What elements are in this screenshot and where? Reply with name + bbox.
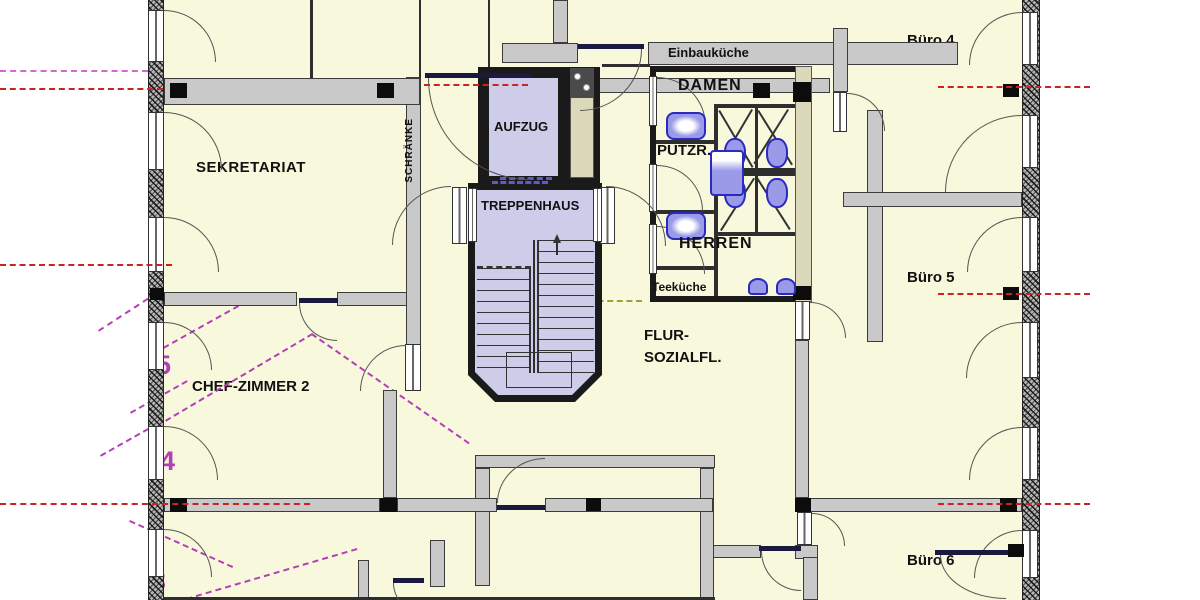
window	[649, 76, 657, 126]
column	[586, 498, 601, 511]
window	[1022, 115, 1038, 168]
partition-line	[714, 104, 795, 108]
door-leaf	[578, 44, 644, 49]
door-leaf	[425, 73, 531, 78]
centerline	[938, 503, 1090, 505]
stair-flight-down	[477, 268, 531, 373]
centerline	[0, 503, 310, 505]
room-label-aufzug: AUFZUG	[494, 119, 548, 134]
column	[150, 288, 164, 300]
wall	[833, 28, 848, 92]
room-label-herren: HERREN	[679, 235, 753, 253]
door-leaf	[935, 550, 1008, 555]
room-label-flur-line1: FLUR-	[644, 327, 689, 344]
wall-solid	[650, 66, 812, 72]
window	[593, 188, 602, 242]
wall	[358, 560, 369, 600]
wall	[164, 292, 297, 306]
centerline	[938, 86, 1090, 88]
stair-cut-line	[477, 266, 531, 268]
window	[1022, 12, 1038, 65]
window	[833, 92, 847, 132]
column	[170, 498, 187, 512]
stair-arrow-stem	[556, 243, 558, 255]
wall	[803, 557, 818, 600]
door-leaf	[759, 546, 801, 551]
stair-direction-arrow	[553, 234, 561, 243]
floor-plan: SEKRETARIAT CHEF-ZIMMER 2 AUFZUG TREPPEN…	[0, 0, 1200, 600]
wall	[545, 498, 713, 512]
exterior-wall-right	[1022, 0, 1040, 600]
centerline	[424, 84, 528, 86]
room-label-teekueche: Teeküche	[652, 280, 706, 294]
column	[1008, 544, 1024, 557]
wall	[337, 292, 407, 306]
window	[1022, 217, 1038, 272]
toilet	[766, 138, 788, 168]
window	[148, 322, 164, 370]
wall	[430, 540, 445, 587]
window	[452, 187, 467, 244]
window	[148, 426, 164, 480]
exterior-wall-left	[148, 0, 164, 600]
door-leaf	[299, 298, 338, 303]
stair-flight-up	[537, 240, 594, 373]
door-swing-arc	[393, 583, 423, 600]
column	[753, 83, 770, 98]
construction-line	[100, 428, 149, 457]
wall	[867, 110, 883, 342]
wall	[553, 0, 568, 43]
wall	[795, 340, 809, 498]
urinal	[748, 278, 768, 295]
window	[797, 512, 812, 545]
toilet	[766, 178, 788, 208]
wall	[383, 390, 397, 498]
room-label-treppenhaus: TREPPENHAUS	[481, 198, 579, 213]
wall	[843, 192, 1022, 207]
room-label-flur-line2: SOZIALFL.	[644, 349, 722, 366]
room-label-einbaukueche: Einbauküche	[668, 45, 749, 60]
sink-damen	[666, 112, 706, 140]
centerline	[938, 293, 1090, 295]
stair-door	[492, 181, 548, 184]
column	[795, 498, 811, 512]
partition-line	[755, 176, 758, 234]
utility-basin	[710, 150, 744, 196]
column	[793, 82, 811, 102]
column	[377, 83, 394, 98]
partition-line	[310, 0, 313, 78]
room-label-schraenke: SCHRÄNKE	[404, 118, 415, 183]
centerline	[0, 264, 172, 266]
window	[1022, 322, 1038, 378]
room-label-buero5: Büro 5	[907, 269, 955, 286]
room-label-damen: DAMEN	[678, 77, 742, 95]
door-leaf	[497, 505, 545, 510]
window	[148, 529, 164, 577]
wall	[397, 498, 497, 512]
construction-line	[0, 70, 148, 72]
window	[1022, 427, 1038, 480]
column	[170, 83, 187, 98]
window	[405, 344, 421, 391]
wall	[810, 498, 1022, 512]
room-label-putzraum: PUTZR.	[657, 142, 711, 159]
column	[380, 498, 397, 512]
window	[148, 112, 164, 170]
partition-line	[419, 0, 421, 78]
window	[1022, 530, 1038, 578]
wall	[502, 43, 578, 63]
wall	[475, 455, 715, 468]
wall-solid	[650, 296, 812, 302]
column	[1000, 498, 1017, 512]
construction-line	[98, 298, 149, 332]
urinal	[776, 278, 796, 295]
window	[468, 188, 477, 242]
wall	[713, 545, 761, 558]
partition-line	[488, 0, 490, 67]
wall	[700, 468, 714, 600]
wall	[475, 468, 490, 586]
wall	[164, 498, 380, 512]
window	[148, 10, 164, 62]
window	[795, 301, 810, 340]
centerline	[0, 88, 163, 90]
door-leaf	[393, 578, 424, 583]
